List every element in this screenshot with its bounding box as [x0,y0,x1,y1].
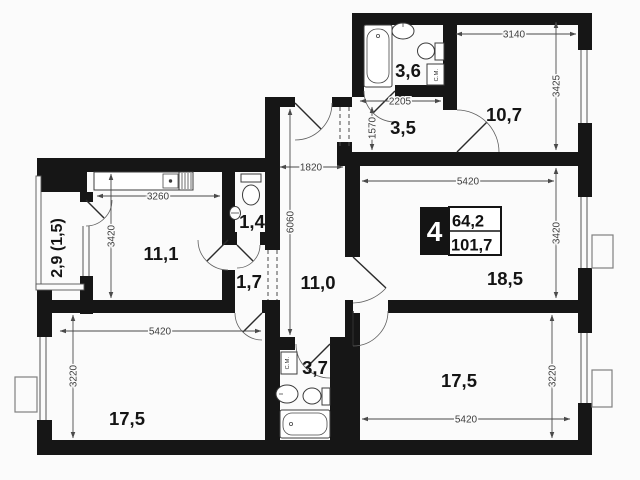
balcony-railing [36,284,84,290]
dimension-label: 3260 [147,192,170,203]
wall [260,232,280,245]
room-label-balcony: 2,9 (1,5) [49,218,66,278]
sink [276,385,298,403]
toilet [418,43,445,60]
dimension-label: 3140 [503,30,526,41]
ac-basket [15,377,37,412]
wall [265,300,280,440]
washing-machine-label: С.М. [285,356,291,369]
wall [578,13,592,50]
dimension-label: 3425 [552,74,563,97]
door-wc [237,245,260,268]
window [578,50,592,123]
wall [262,300,280,313]
wall [37,300,235,313]
window [578,333,592,403]
wall [395,85,443,97]
dimension-label: 3420 [552,221,563,244]
wall [37,158,87,192]
dimension-label: 1570 [368,116,379,139]
door-balcony [86,200,112,226]
total-area: 101,7 [451,237,492,255]
floor-plan: С.М. С.М. [0,0,640,480]
door-entrance [295,103,332,140]
dimension-label: 5420 [149,327,172,338]
sink [392,23,414,39]
window [578,197,592,268]
room-label-hall-top: 3,5 [390,117,416,138]
room-count: 4 [427,216,443,247]
washing-machine: С.М. [427,64,444,85]
window [37,337,52,420]
wall [345,166,360,257]
bathtub [364,25,392,87]
ac-basket [592,235,613,268]
room-label-hall-inner: 1,7 [236,271,262,292]
wall [337,142,352,152]
room-label-kitchen: 11,1 [144,243,179,264]
dimension-label: 2205 [389,97,412,108]
room-label-wc: 1,4 [239,211,265,232]
wall [265,97,280,250]
room-label-living: 18,5 [487,268,523,289]
window [83,226,89,276]
wall [222,160,235,240]
dimension-label: 3420 [107,224,118,247]
apartment-info-badge: 4 64,2 101,7 [420,207,501,255]
living-area: 64,2 [452,213,484,231]
dimension-label: 1820 [300,163,323,174]
room-label-corridor: 11,0 [301,272,336,293]
opening-dashed [340,107,349,148]
room-label-bath-top: 3,6 [395,60,421,81]
bathtub [280,410,330,438]
wall [337,152,592,166]
toilet [241,174,261,205]
washing-machine-label: С.М. [434,68,440,81]
balcony-railing [36,176,41,288]
dimension-label: 6060 [286,210,297,233]
opening-dashed [268,250,277,300]
wall [388,300,578,313]
dimension-label: 3220 [548,364,559,387]
dimension-label: 3220 [69,364,80,387]
wall [332,97,352,107]
kitchen-counter [94,172,193,190]
dimension-label: 5420 [457,177,480,188]
wall [330,337,345,440]
wall [443,13,457,110]
room-label-top-right: 10,7 [486,104,522,125]
door-living [353,257,386,303]
room-label-bedroom-right: 17,5 [441,370,477,391]
room-label-bath-bottom: 3,7 [302,357,328,378]
door-kitchen [198,240,228,270]
wall [280,337,295,350]
dimension-label: 5420 [455,415,478,426]
washing-machine: С.М. [281,352,297,374]
wall [37,440,592,455]
toilet [303,388,330,405]
wall [222,270,235,303]
wall [352,13,364,97]
ac-basket [592,370,612,407]
wall [578,268,592,333]
floor-plan-page: С.М. С.М. [0,0,640,480]
door-bedroom-left [235,313,262,340]
wall [345,300,353,313]
room-label-bedroom-left: 17,5 [109,408,145,429]
